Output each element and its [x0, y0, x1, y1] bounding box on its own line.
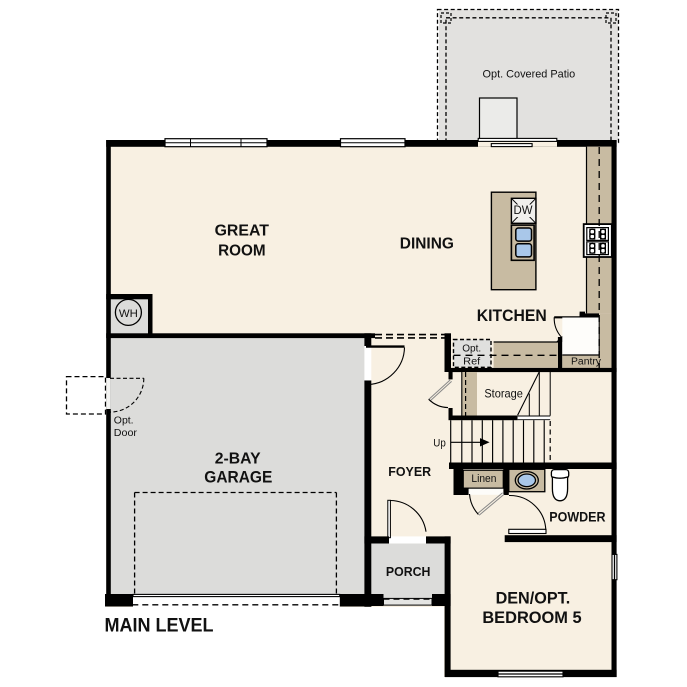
svg-text:Up: Up: [433, 437, 446, 449]
svg-text:Ref: Ref: [463, 356, 480, 367]
svg-text:Door: Door: [114, 428, 138, 439]
svg-text:WH: WH: [119, 308, 138, 320]
svg-text:KITCHEN: KITCHEN: [477, 307, 547, 325]
svg-text:Pantry: Pantry: [571, 357, 601, 368]
svg-text:2-BAY: 2-BAY: [215, 450, 261, 467]
svg-text:FOYER: FOYER: [388, 464, 431, 479]
svg-text:DINING: DINING: [400, 236, 454, 253]
svg-text:GREAT: GREAT: [215, 223, 270, 240]
svg-text:DEN/OPT.: DEN/OPT.: [496, 589, 571, 607]
svg-text:Opt.: Opt.: [462, 343, 481, 354]
svg-text:Storage: Storage: [484, 386, 523, 400]
svg-text:PORCH: PORCH: [386, 564, 431, 579]
svg-text:POWDER: POWDER: [549, 509, 605, 524]
svg-text:Opt. Covered Patio: Opt. Covered Patio: [483, 69, 576, 81]
svg-text:Opt.: Opt.: [114, 416, 134, 427]
svg-text:DW: DW: [514, 205, 533, 217]
svg-text:MAIN LEVEL: MAIN LEVEL: [105, 615, 214, 636]
svg-text:ROOM: ROOM: [218, 242, 266, 259]
svg-text:Linen: Linen: [471, 473, 496, 485]
svg-text:BEDROOM 5: BEDROOM 5: [482, 608, 581, 627]
svg-text:GARAGE: GARAGE: [204, 469, 272, 487]
